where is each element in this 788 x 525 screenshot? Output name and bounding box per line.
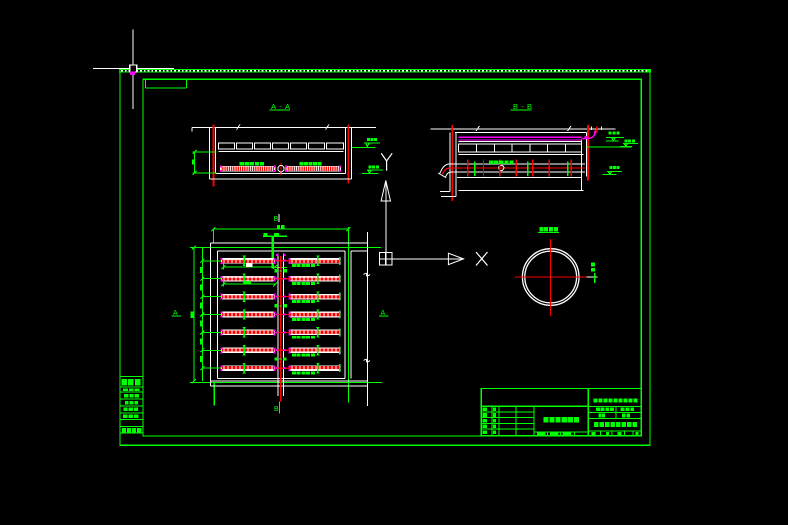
svg-text:B: B [274,216,279,223]
svg-text:B: B [274,406,279,413]
